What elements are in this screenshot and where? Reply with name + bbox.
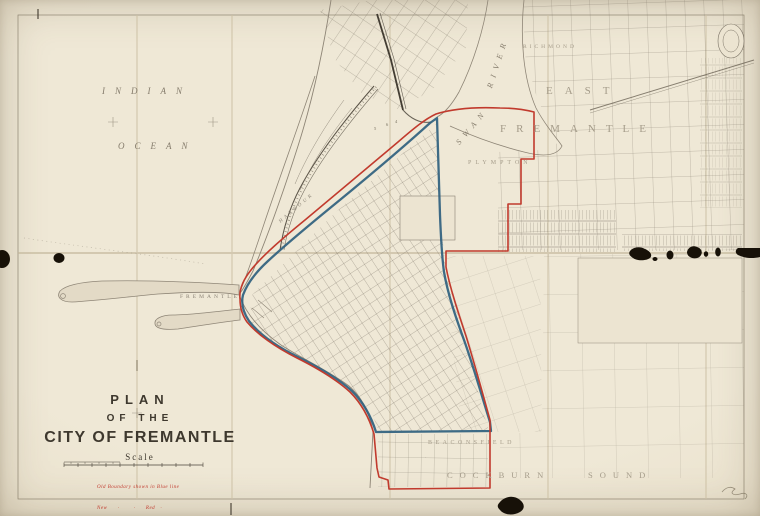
east-fremantle-label-word2: FREMANTLE	[500, 124, 656, 135]
scale-label: Scale	[40, 452, 240, 462]
boundary-legend: Old Boundary shown in Blue line New · · …	[97, 470, 179, 516]
map-title-line3: CITY OF FREMANTLE	[40, 429, 240, 447]
map-sheet: INDIAN OCEAN SWAN RIVER HARBOUR FREMANTL…	[0, 0, 760, 516]
east-fremantle-label-word1: EAST	[546, 86, 622, 97]
boundary-legend-line2: New · · Red ·	[97, 505, 179, 512]
map-title-line1: PLAN	[40, 392, 240, 407]
plympton-label: PLYMPTON	[468, 160, 532, 166]
oval-racecourse	[718, 24, 744, 58]
sounding-value: 4	[395, 119, 397, 124]
street-grid-beaconsfield	[447, 256, 542, 432]
indian-ocean-label-word1: INDIAN	[102, 87, 192, 96]
street-grid-north-fremantle	[320, 0, 468, 110]
south-mole	[155, 309, 240, 329]
richmond-label: RICHMOND	[523, 45, 577, 51]
indian-ocean-label-word2: OCEAN	[118, 142, 198, 151]
scale-bar	[64, 462, 203, 467]
boundary-legend-line1: Old Boundary shown in Blue line	[97, 484, 179, 491]
map-title-line2: OF THE	[40, 413, 240, 424]
title-block: PLAN OF THE CITY OF FREMANTLE Scale	[40, 392, 240, 462]
beaconsfield-label: BEACONSFIELD	[428, 440, 515, 446]
sounding-value: 5	[374, 126, 376, 131]
cockburn-sound-label-word2: SOUND	[588, 471, 652, 480]
pencil-annotation	[722, 487, 747, 499]
cockburn-sound-label-word1: COCKBURN	[447, 471, 550, 480]
fremantle-port-label: FREMANTLE	[180, 295, 240, 301]
sounding-value: 6	[386, 122, 388, 127]
